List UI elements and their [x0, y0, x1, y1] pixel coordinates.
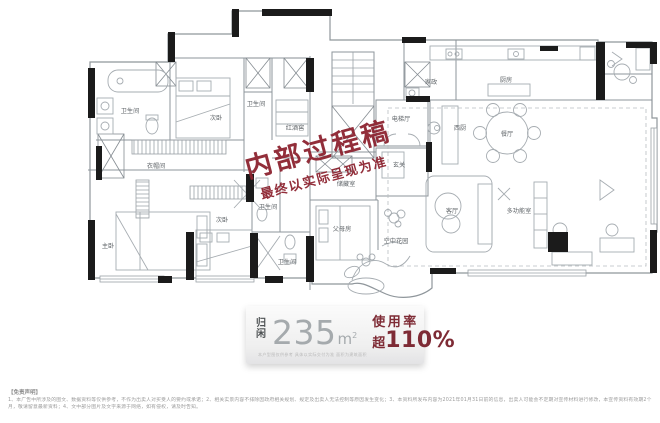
project-name: 归闲	[256, 318, 269, 341]
area-badge-left: 归闲 235 m2	[256, 316, 357, 355]
room-label: 红酒窖	[286, 124, 305, 132]
usage-label: 使用率	[372, 316, 455, 330]
room-label: 厨房	[500, 76, 512, 84]
room-label: 卫生间	[247, 100, 266, 108]
room-label: 西厨	[454, 125, 466, 132]
room-label: 主卧	[102, 242, 114, 250]
disclaimer: 【免责声明】 1、本广告中所涉及的图文、数据资料等仅供参考，不作为出卖人对买受人…	[8, 388, 654, 412]
room-label: 衣帽间	[147, 162, 166, 170]
disclaimer-heading: 【免责声明】	[8, 388, 654, 396]
area-value: 235	[272, 316, 337, 349]
room-label: 玄关	[393, 161, 405, 169]
floorplan-page: 卫生间次卧卫生间红酒窖电梯厅家政厨房西厨餐厅玄关储藏室衣帽间主卧次卧卫生间卫生间…	[0, 0, 660, 423]
room-label: 卫生间	[121, 107, 140, 115]
room-label: 客厅	[446, 207, 458, 215]
room-label: 卫生间	[278, 258, 297, 266]
usage-value: 110%	[385, 329, 455, 352]
usage-rate: 使用率 超 110%	[372, 316, 455, 353]
usage-prefix: 超	[372, 337, 385, 351]
room-label: 电梯厅	[392, 115, 411, 123]
area-figure: 235 m2	[272, 316, 357, 349]
room-label: 空中花园	[384, 237, 409, 245]
area-badge: 归闲 235 m2 本户型图仅供参考 具体以实际交付为准 面积为建筑面积 使用率…	[246, 306, 424, 364]
room-label: 餐厅	[501, 130, 513, 138]
disclaimer-body: 1、本广告中所涉及的图文、数据资料等仅供参考，不作为出卖人对买受人的要约或承诺；…	[8, 397, 654, 412]
room-label: 次卧	[210, 114, 222, 122]
room-label: 储藏室	[337, 180, 356, 188]
badge-fine-print: 本户型图仅供参考 具体以实际交付为准 面积为建筑面积	[258, 352, 367, 358]
floor-plan: 卫生间次卧卫生间红酒窖电梯厅家政厨房西厨餐厅玄关储藏室衣帽间主卧次卧卫生间卫生间…	[0, 0, 660, 310]
room-label: 家政	[425, 78, 437, 86]
room-label: 卫生间	[259, 203, 278, 211]
room-label: 父母房	[333, 225, 352, 233]
area-unit: m2	[338, 332, 358, 347]
room-label: 多功能室	[507, 207, 532, 215]
room-label: 次卧	[216, 216, 228, 224]
